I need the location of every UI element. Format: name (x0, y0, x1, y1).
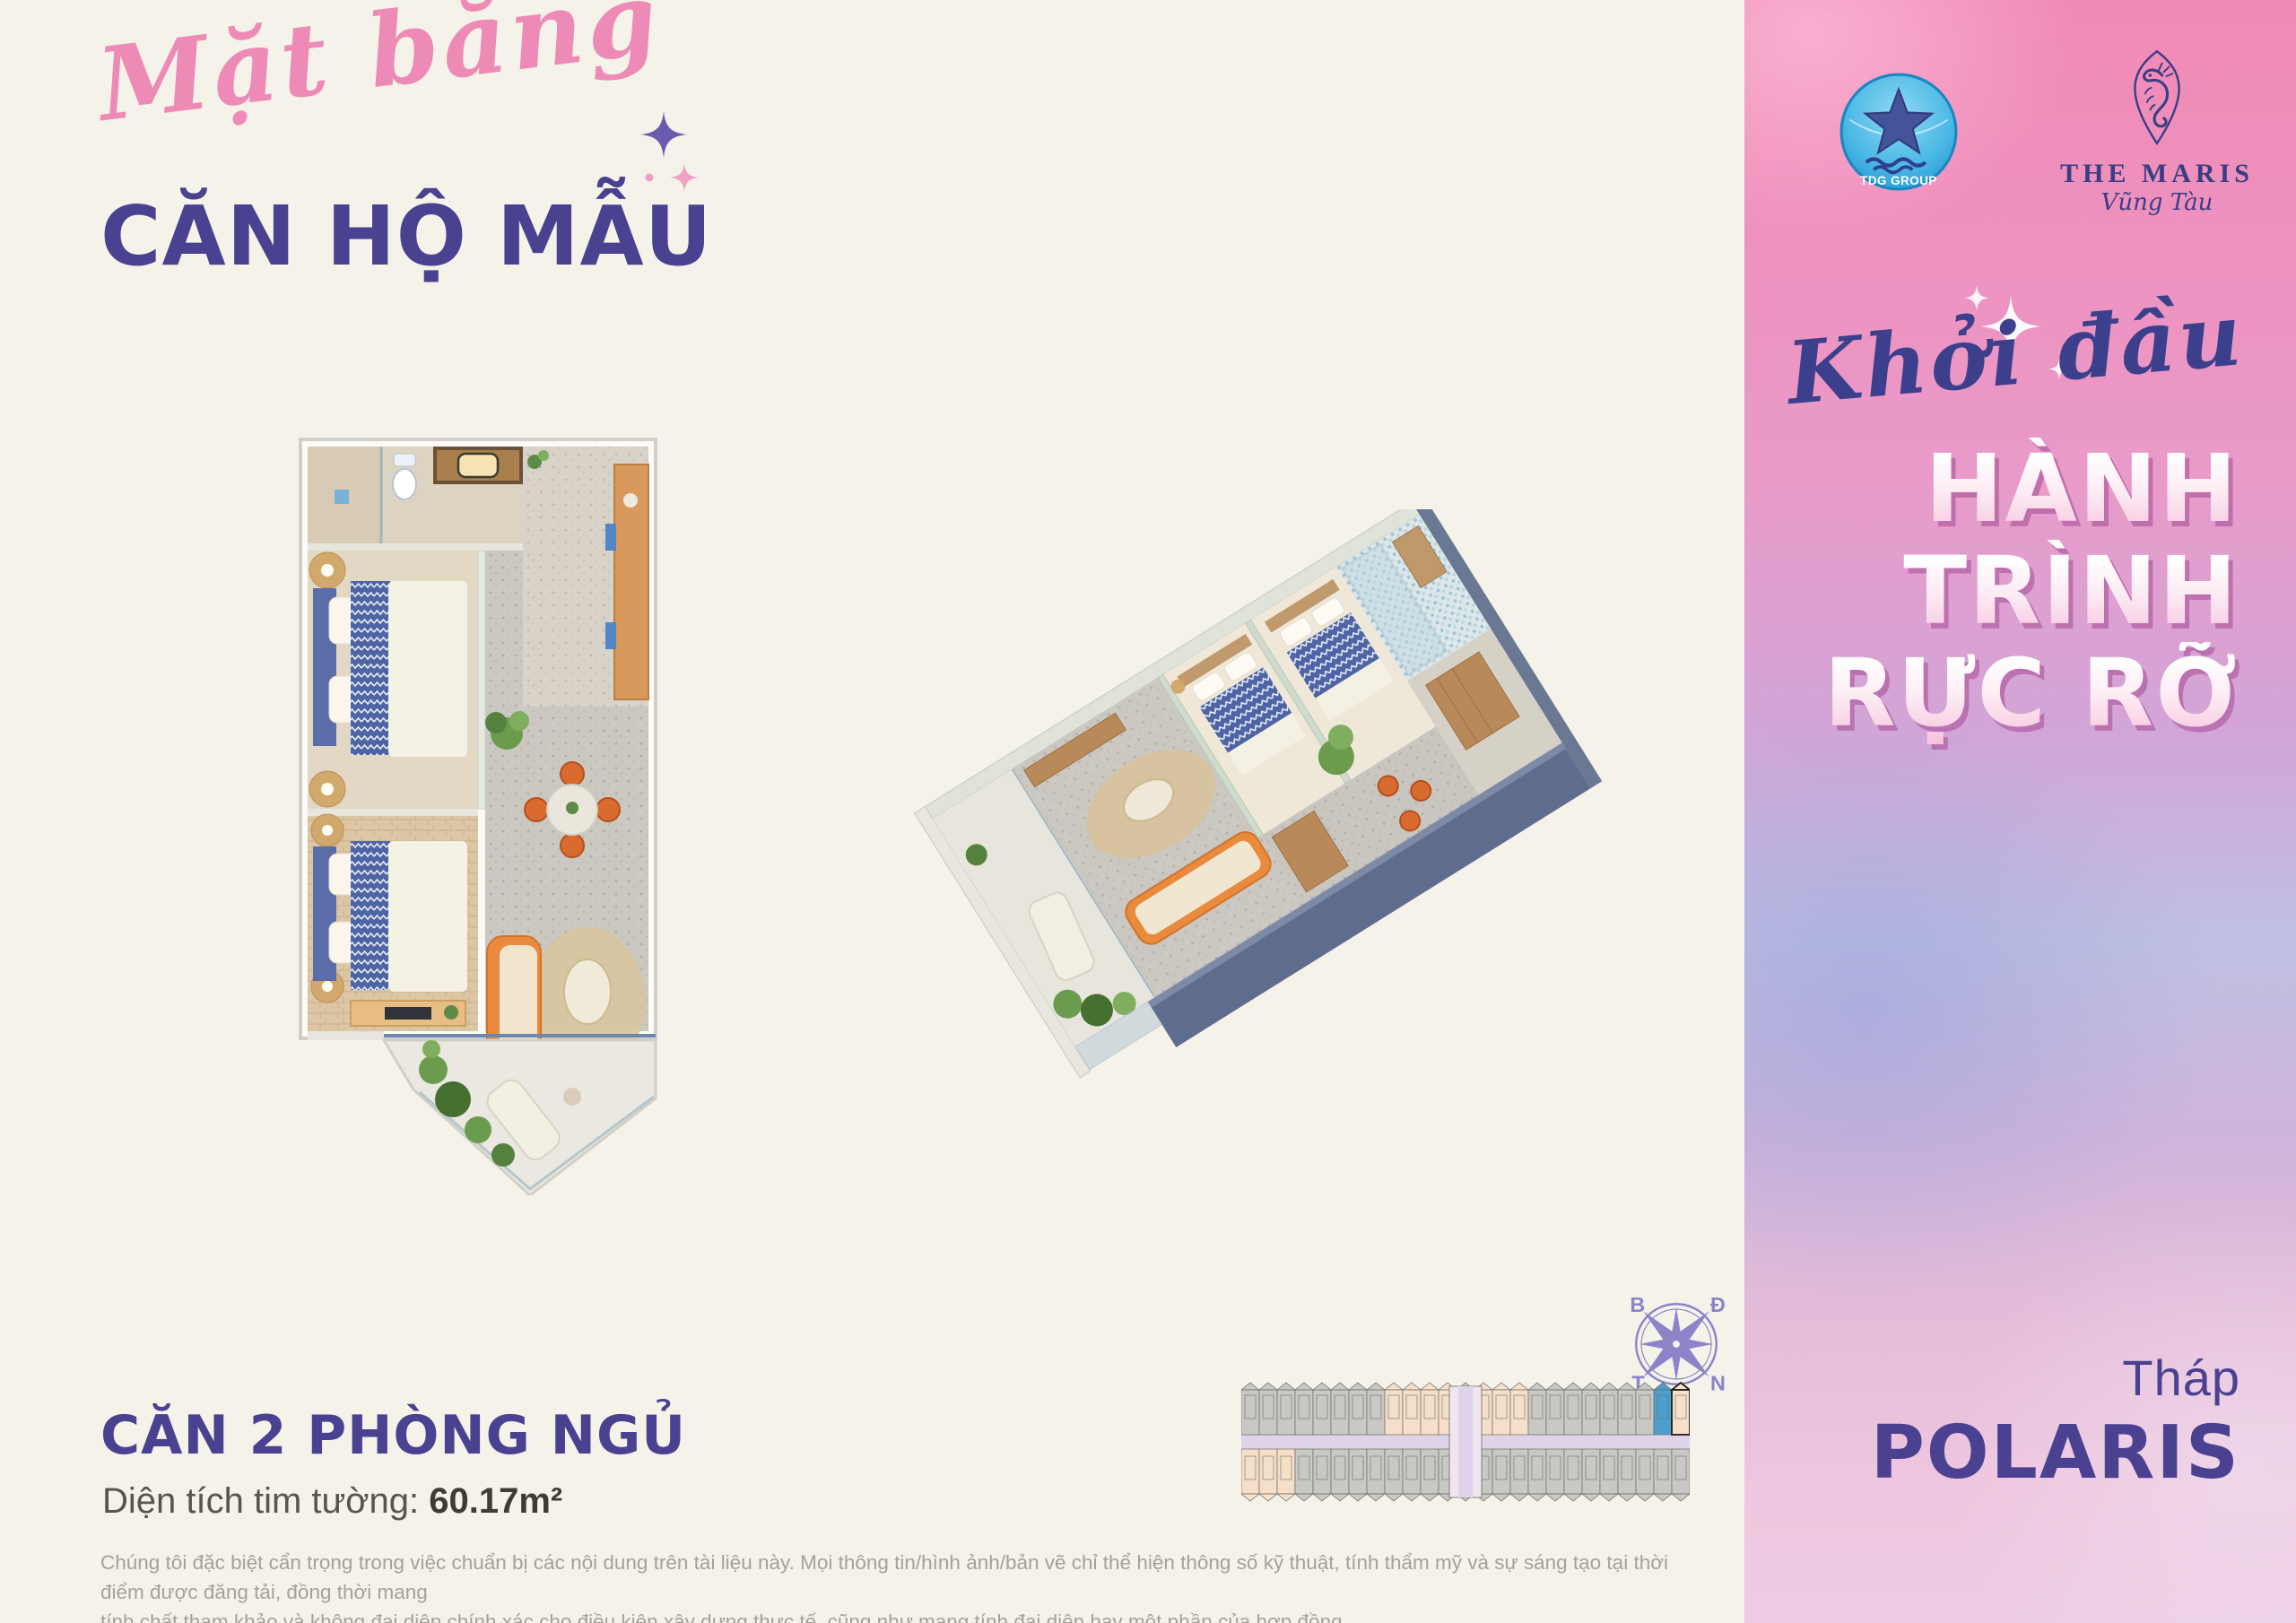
floorplan-topdown (299, 438, 657, 1195)
unit-name: CĂN 2 PHÒNG NGỦ (100, 1404, 686, 1467)
seahorse-icon (2114, 45, 2200, 151)
compass-north-label: B (1630, 1293, 1645, 1316)
the-maris-logo: THE MARIS Vũng Tàu (2049, 45, 2265, 216)
maris-subtitle: Vũng Tàu (2049, 189, 2265, 216)
floorplan-3d (906, 509, 1641, 1191)
unit-area: Diện tích tim tường: 60.17m² (102, 1481, 562, 1522)
tower-label: Tháp (1871, 1349, 2240, 1407)
disclaimer: Chúng tôi đặc biệt cẩn trọng trong việc … (100, 1548, 1715, 1623)
unit-area-label: Diện tích tim tường: (102, 1481, 429, 1521)
page-title: CĂN HỘ MẪU (100, 188, 712, 284)
sidebar-script-title: Khởi đầu (1783, 283, 2248, 424)
tower-block: Tháp POLARIS (1871, 1349, 2240, 1496)
tdg-group-logo: TDG GROUP (1839, 72, 1959, 192)
tower-name: POLARIS (1871, 1410, 2240, 1496)
headline-line-1: HÀNH (1824, 438, 2239, 540)
compass-south-label: N (1710, 1372, 1726, 1395)
headline-line-3: RỰC RỠ (1824, 642, 2239, 744)
unit-area-value: 60.17m² (429, 1481, 562, 1521)
disclaimer-line-1: Chúng tôi đặc biệt cẩn trọng trong việc … (100, 1548, 1715, 1607)
title-sparkles-icon (628, 108, 717, 206)
headline-line-2: TRÌNH (1824, 540, 2239, 642)
sidebar-panel: TDG GROUP THE MARIS Vũng Tàu Khởi đầu HÀ… (1744, 0, 2296, 1623)
brochure-page: Mặt bằng CĂN HỘ MẪU (0, 0, 2296, 1623)
page-title-script: Mặt bằng (91, 0, 666, 144)
sidebar-headline: HÀNH TRÌNH RỰC RỠ (1824, 438, 2239, 744)
compass-east-label: Đ (1710, 1293, 1726, 1316)
disclaimer-line-2: tính chất tham khảo và không đại diện ch… (100, 1607, 1715, 1623)
floor-locator-plan (1241, 1381, 1690, 1515)
maris-title: THE MARIS (2049, 159, 2265, 189)
tdg-group-label: TDG GROUP (1860, 174, 1937, 187)
